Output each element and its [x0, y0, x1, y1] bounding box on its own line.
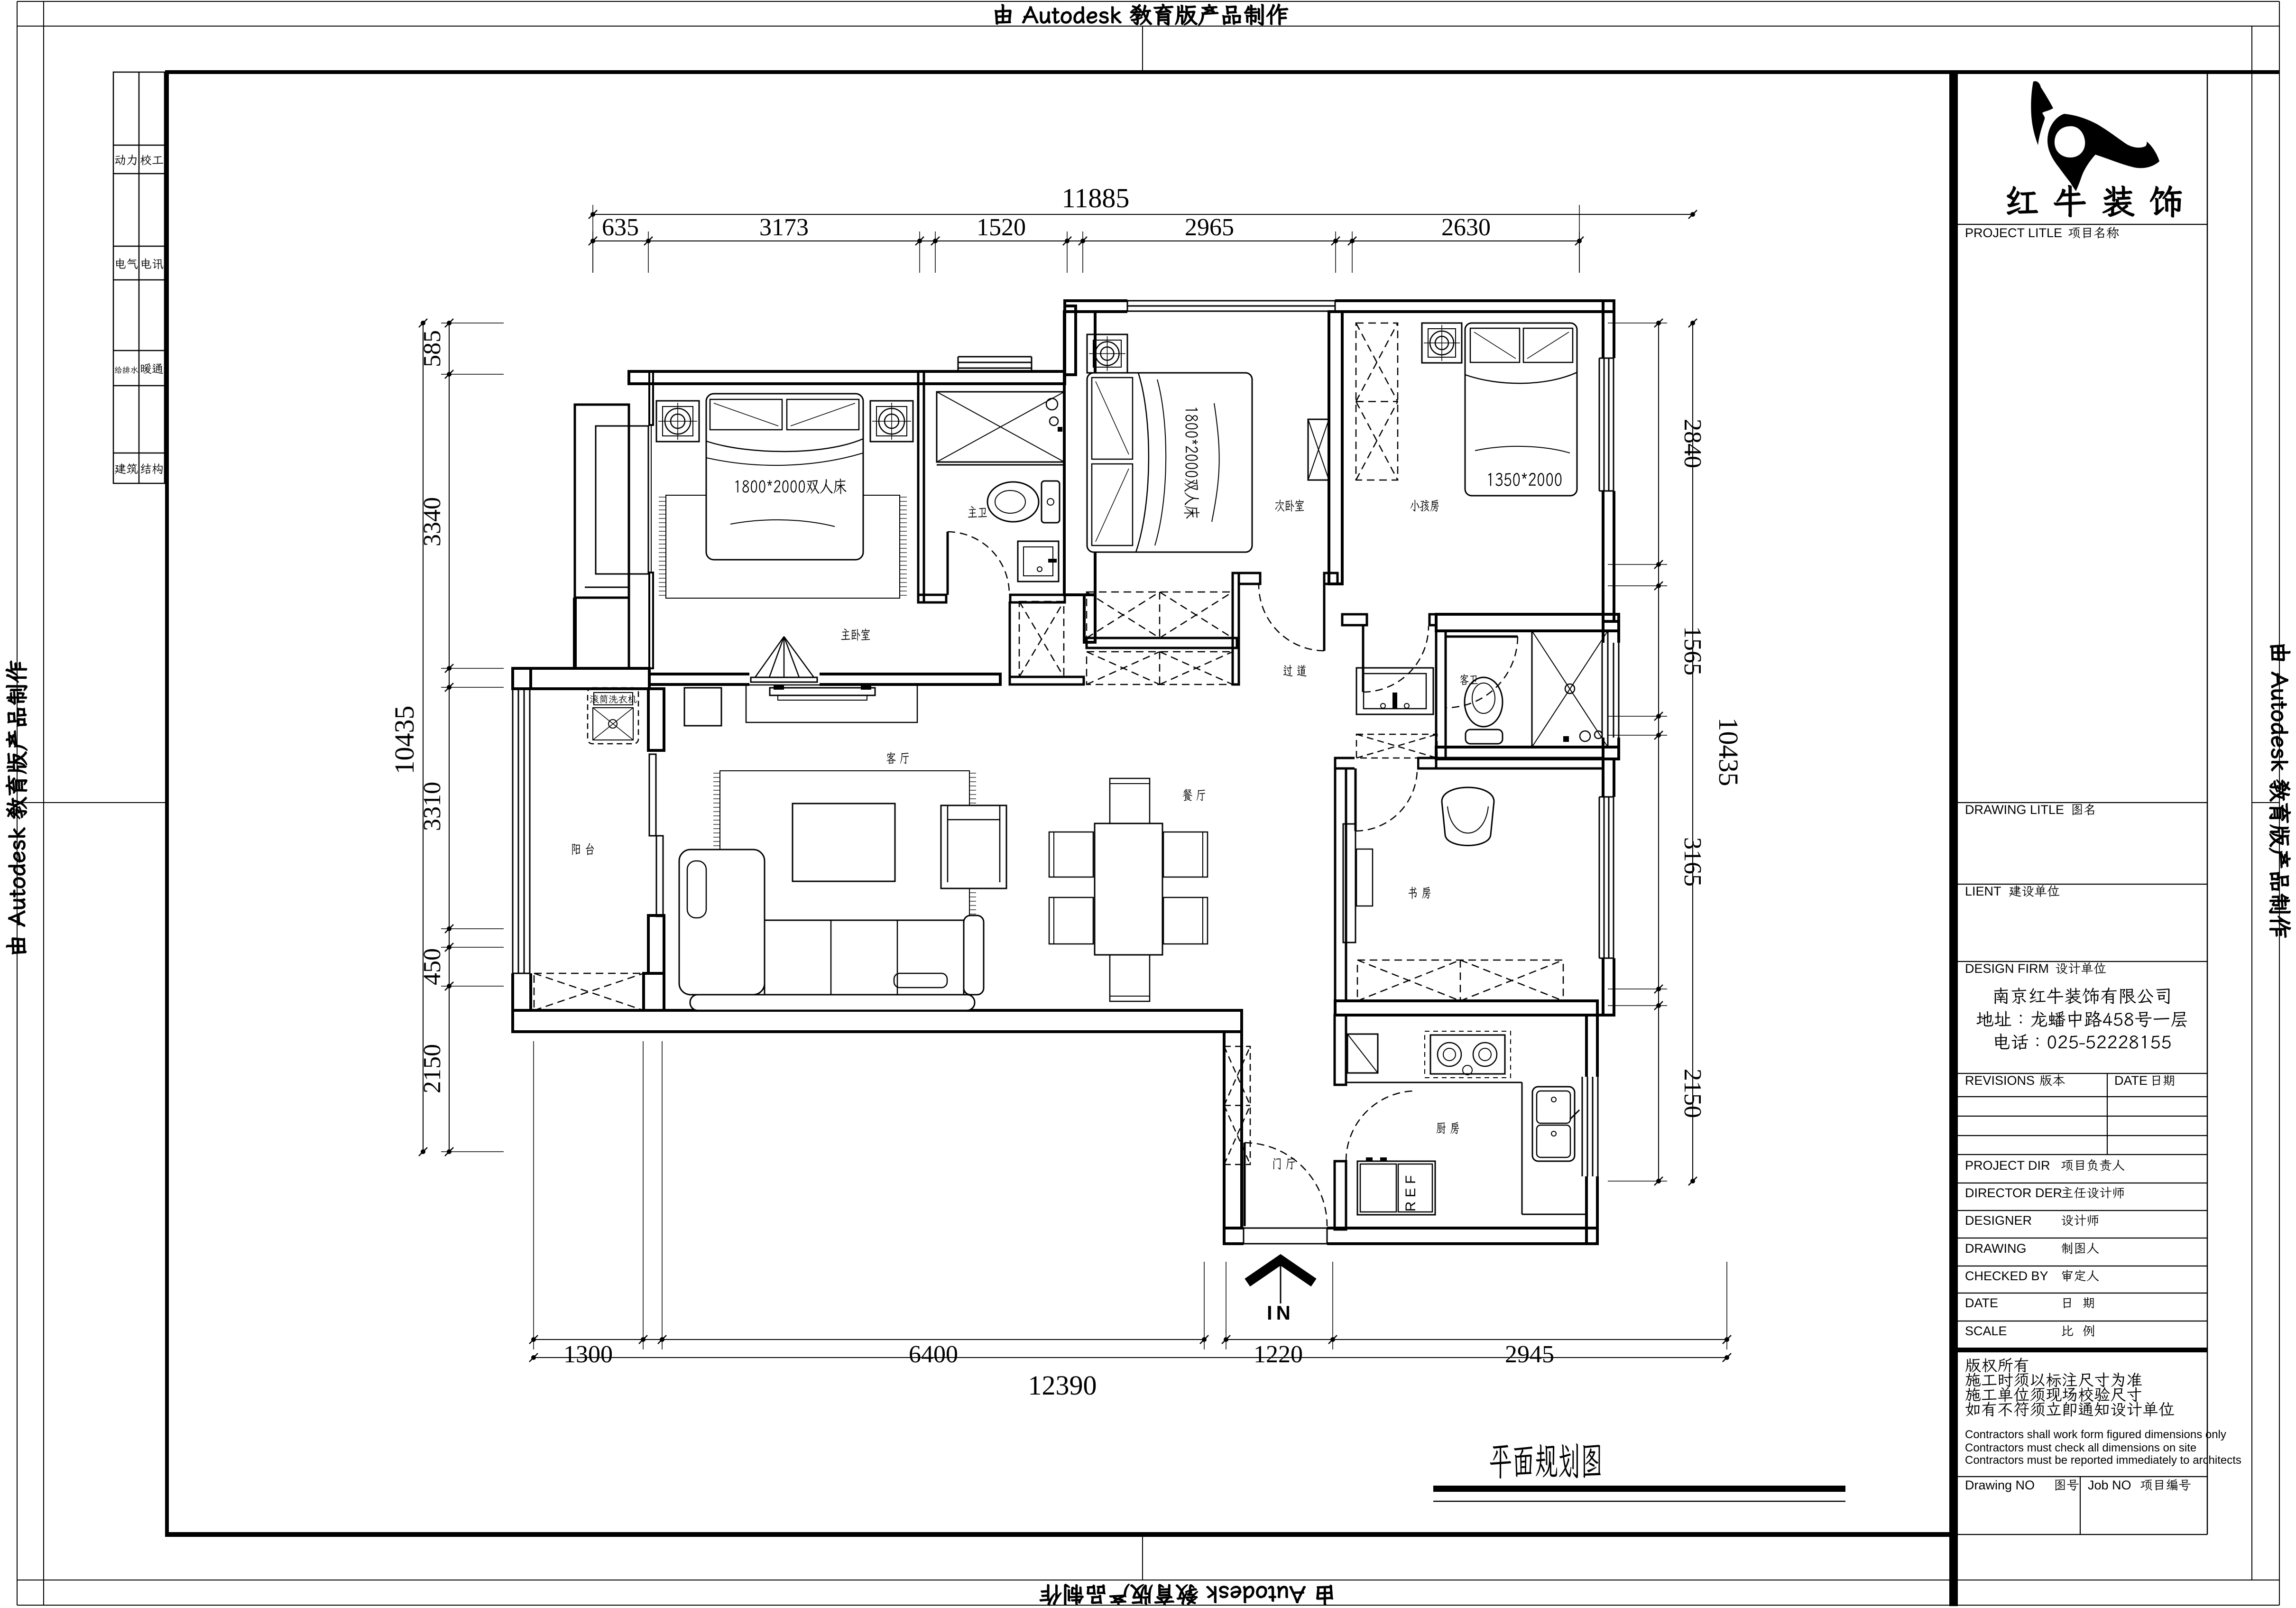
svg-text:Contractors shall work form: Contractors shall work form figured dime…: [1965, 1428, 2226, 1441]
svg-text:DATE: DATE: [2114, 1073, 2148, 1088]
svg-text:Job NO: Job NO: [2088, 1478, 2131, 1492]
svg-text:DATE: DATE: [1965, 1296, 1998, 1310]
svg-text:1300: 1300: [563, 1341, 613, 1368]
svg-text:2965: 2965: [1185, 214, 1234, 241]
svg-text:DESIGNER: DESIGNER: [1965, 1213, 2032, 1228]
svg-text:DESIGN FIRM: DESIGN FIRM: [1965, 961, 2049, 976]
svg-text:Contractors must check all: Contractors must check all dimensions on…: [1965, 1442, 2196, 1454]
svg-text:6400: 6400: [909, 1341, 958, 1368]
svg-text:SCALE: SCALE: [1965, 1324, 2007, 1338]
svg-text:PROJECT LITLE: PROJECT LITLE: [1965, 226, 2062, 240]
svg-text:10435: 10435: [1713, 718, 1744, 786]
svg-text:LIENT: LIENT: [1965, 884, 2001, 898]
svg-text:R E F: R E F: [1403, 1175, 1419, 1212]
svg-text:DRAWING: DRAWING: [1965, 1241, 2027, 1256]
svg-text:DRAWING LITLE: DRAWING LITLE: [1965, 803, 2064, 817]
svg-text:10435: 10435: [389, 706, 420, 775]
svg-text:450: 450: [419, 948, 446, 985]
svg-text:Drawing NO: Drawing NO: [1965, 1478, 2035, 1492]
svg-text:11885: 11885: [1062, 183, 1130, 213]
svg-text:DIRECTOR DER: DIRECTOR DER: [1965, 1186, 2062, 1200]
svg-text:12390: 12390: [1028, 1370, 1097, 1401]
svg-text:635: 635: [602, 214, 639, 241]
svg-text:IN: IN: [1267, 1302, 1294, 1324]
svg-text:3173: 3173: [759, 214, 809, 241]
svg-text:1520: 1520: [977, 214, 1026, 241]
svg-text:Contractors must be reporte: Contractors must be reported immediately…: [1965, 1454, 2241, 1467]
svg-text:PROJECT DIR: PROJECT DIR: [1965, 1158, 2050, 1173]
svg-text:1220: 1220: [1254, 1341, 1303, 1368]
svg-text:REVISIONS: REVISIONS: [1965, 1073, 2035, 1088]
svg-text:3310: 3310: [419, 782, 446, 831]
svg-text:2945: 2945: [1505, 1341, 1554, 1368]
svg-text:2630: 2630: [1441, 214, 1491, 241]
svg-text:3340: 3340: [419, 497, 446, 546]
svg-text:585: 585: [419, 330, 446, 367]
svg-text:CHECKED BY: CHECKED BY: [1965, 1269, 2048, 1283]
svg-text:2150: 2150: [419, 1044, 446, 1093]
